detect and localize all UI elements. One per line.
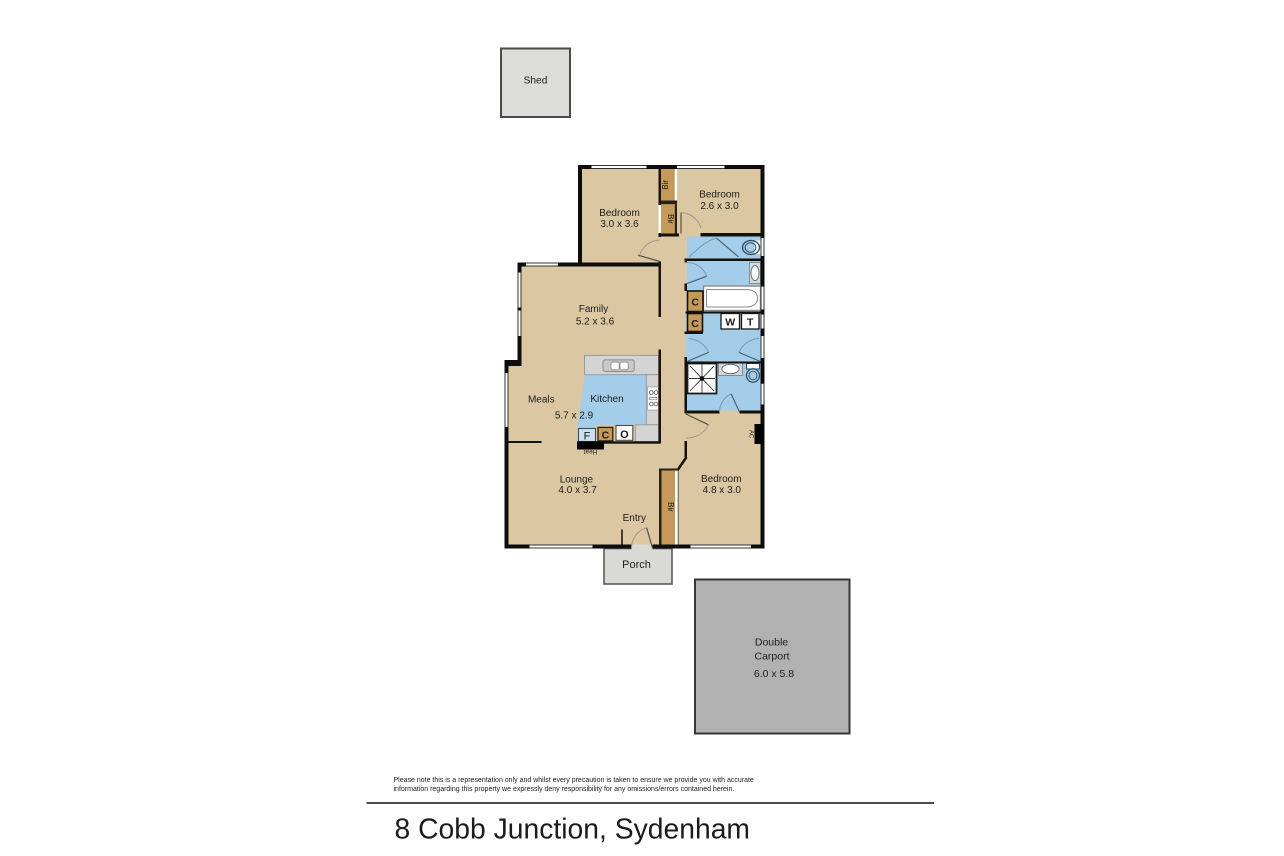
svg-text:Bedroom: Bedroom [701,474,742,485]
svg-text:Bir: Bir [666,502,675,512]
svg-text:5.7 x 2.9: 5.7 x 2.9 [555,411,594,422]
svg-text:Shed: Shed [524,76,548,87]
svg-text:Bedroom: Bedroom [599,208,640,219]
svg-text:Heat: Heat [583,448,597,455]
svg-text:Kitchen: Kitchen [590,394,623,405]
svg-text:Bir: Bir [661,180,670,190]
svg-text:Double: Double [755,637,788,649]
svg-text:4.8 x 3.0: 4.8 x 3.0 [703,485,742,496]
svg-text:Carport: Carport [754,651,789,663]
svg-text:Lounge: Lounge [560,475,594,486]
svg-text:T: T [747,316,754,328]
svg-text:C: C [691,297,699,309]
svg-text:Bedroom: Bedroom [699,190,740,201]
svg-text:information regarding this pro: information regarding this property we e… [394,786,735,793]
svg-text:5.2 x 3.6: 5.2 x 3.6 [576,317,615,328]
svg-text:3.0 x 3.6: 3.0 x 3.6 [600,219,639,230]
svg-text:Bir: Bir [666,214,675,224]
svg-text:O: O [620,429,629,441]
svg-text:F: F [584,431,591,443]
svg-text:4.0 x 3.7: 4.0 x 3.7 [558,485,597,496]
svg-text:Porch: Porch [622,559,651,571]
svg-text:AC: AC [748,430,754,439]
svg-text:6.0 x 5.8: 6.0 x 5.8 [754,668,794,680]
svg-text:Entry: Entry [623,513,646,524]
svg-text:C: C [691,318,699,330]
svg-text:2.6 x 3.0: 2.6 x 3.0 [700,201,739,212]
svg-text:8 Cobb Junction, Sydenham: 8 Cobb Junction, Sydenham [395,813,751,845]
svg-text:Family: Family [579,304,608,315]
svg-text:Meals: Meals [528,395,555,406]
svg-text:C: C [602,430,610,442]
svg-text:Please note this is a represen: Please note this is a representation onl… [394,777,754,784]
svg-text:W: W [725,316,735,328]
